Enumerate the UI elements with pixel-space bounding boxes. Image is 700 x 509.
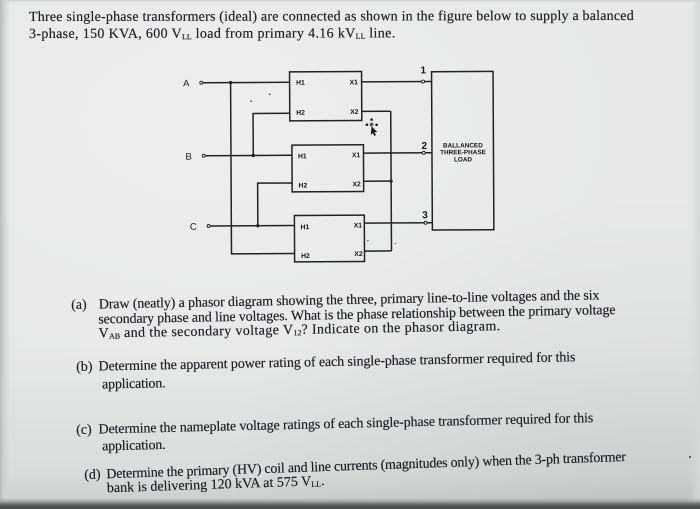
svg-text:A: A (183, 78, 190, 89)
svg-text:X2: X2 (350, 109, 359, 116)
svg-text:X2: X2 (354, 251, 363, 258)
svg-text:X2: X2 (353, 181, 362, 188)
svg-text:H2: H2 (296, 110, 305, 117)
svg-text:H1: H1 (296, 80, 305, 87)
svg-text:3: 3 (422, 210, 428, 221)
svg-text:2: 2 (422, 141, 428, 152)
svg-text:X1: X1 (352, 152, 361, 159)
svg-text:H1: H1 (298, 153, 307, 160)
svg-text:THREE-PHASE: THREE-PHASE (440, 149, 487, 156)
svg-text:C: C (190, 222, 197, 233)
svg-text:H2: H2 (299, 182, 308, 189)
svg-text:LOAD: LOAD (454, 156, 473, 163)
svg-text:X1: X1 (354, 222, 363, 229)
svg-text:B: B (185, 152, 191, 163)
svg-text:H1: H1 (301, 224, 310, 231)
svg-text:X1: X1 (350, 79, 359, 86)
svg-text:H2: H2 (301, 253, 310, 260)
svg-text:1: 1 (420, 65, 426, 76)
